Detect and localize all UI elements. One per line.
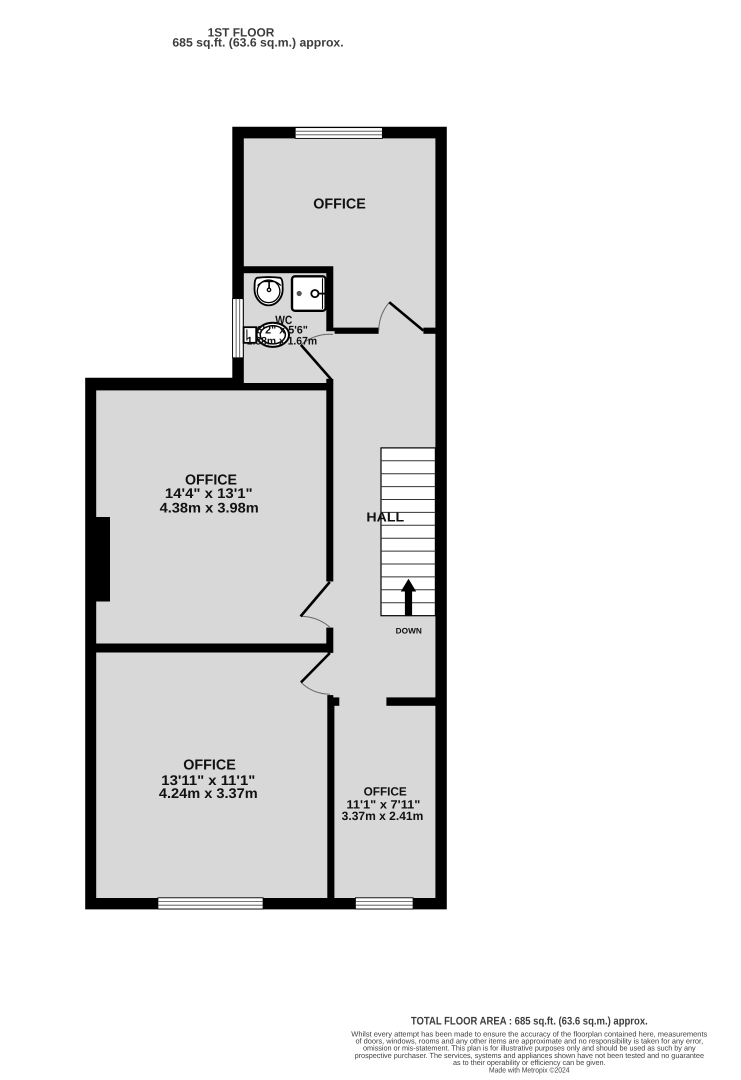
- svg-text:Made with Metropix ©2024: Made with Metropix ©2024: [489, 1065, 570, 1074]
- svg-text:OFFICE: OFFICE: [364, 784, 407, 798]
- svg-text:TOTAL FLOOR AREA : 685 sq.ft.: TOTAL FLOOR AREA : 685 sq.ft. (63.6 sq.m…: [411, 1016, 648, 1028]
- svg-text:4.24m x 3.37m: 4.24m x 3.37m: [159, 785, 258, 801]
- svg-text:DOWN: DOWN: [396, 627, 422, 636]
- svg-text:1.88m x 1.67m: 1.88m x 1.67m: [247, 335, 318, 347]
- svg-text:HALL: HALL: [366, 510, 404, 525]
- svg-text:3.37m x 2.41m: 3.37m x 2.41m: [342, 809, 424, 823]
- svg-text:OFFICE: OFFICE: [313, 197, 366, 213]
- svg-text:4.38m x 3.98m: 4.38m x 3.98m: [160, 500, 259, 516]
- svg-text:685 sq.ft. (63.6 sq.m.) approx: 685 sq.ft. (63.6 sq.m.) approx.: [172, 36, 343, 50]
